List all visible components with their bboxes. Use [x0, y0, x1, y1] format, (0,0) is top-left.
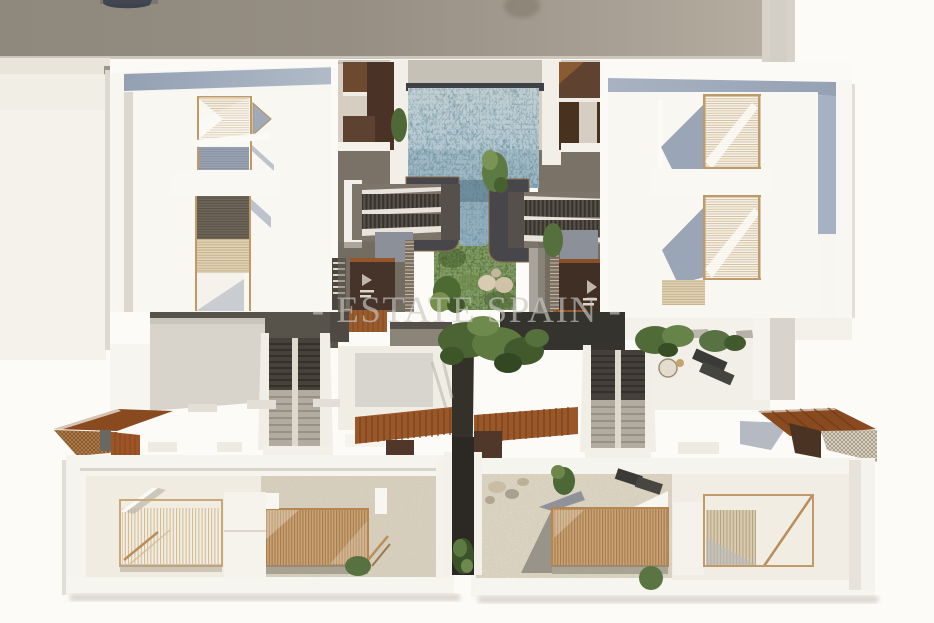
svg-text:- ESTATE SPAIN -: - ESTATE SPAIN - [312, 290, 623, 331]
